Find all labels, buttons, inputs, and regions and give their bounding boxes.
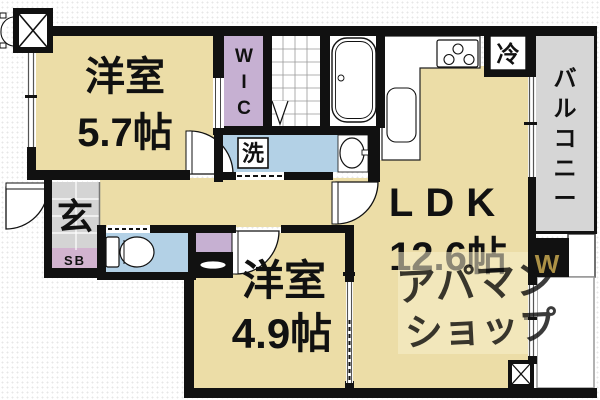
- bedroom-a-size: 5.7帖: [77, 111, 173, 155]
- wic-door: [213, 78, 224, 128]
- watermark-line1: アパマン: [395, 258, 556, 310]
- pipe-shaft-bottom-right-icon: [508, 360, 534, 388]
- wash-basin-icon: [338, 135, 371, 172]
- toilet-icon: [106, 237, 154, 267]
- bedroom-b-size: 4.9帖: [232, 310, 332, 357]
- bedroom-a-label: 洋室: [85, 55, 165, 99]
- entrance-label: 玄: [57, 196, 93, 237]
- closet-door-icon: [200, 261, 226, 269]
- ldk-label: LDK: [389, 181, 507, 225]
- watermark-line2: ショップ: [404, 305, 558, 355]
- stove-icon: [437, 40, 478, 67]
- refrigerator-label: 冷: [497, 41, 520, 67]
- shoe-box-label: SB: [64, 253, 86, 268]
- floor-plan-drawing: 洋室 5.7帖 WIC 洗 冷 玄 SB バルコニー LDK 12.6帖 洋室 …: [0, 0, 600, 400]
- floor-plan: 洋室 5.7帖 WIC 洗 冷 玄 SB バルコニー LDK 12.6帖 洋室 …: [0, 0, 600, 400]
- room-ldk: [420, 66, 528, 178]
- watermark: W アパマン ショップ: [395, 249, 559, 355]
- window-tick: [25, 95, 37, 98]
- bathtub-icon: [332, 38, 376, 122]
- bedroom-b-label: 洋室: [242, 257, 326, 304]
- laundry-label: 洗: [242, 141, 264, 166]
- balcony-label: バルコニー: [554, 65, 577, 211]
- balcony-neighbor-cell: [568, 234, 595, 277]
- kitchen-sink-icon: [387, 88, 416, 142]
- closet: [196, 231, 232, 252]
- door-arc-entrance: [6, 187, 48, 229]
- hallway: [100, 178, 333, 227]
- pipe-shaft-top-left-icon: [0, 8, 53, 53]
